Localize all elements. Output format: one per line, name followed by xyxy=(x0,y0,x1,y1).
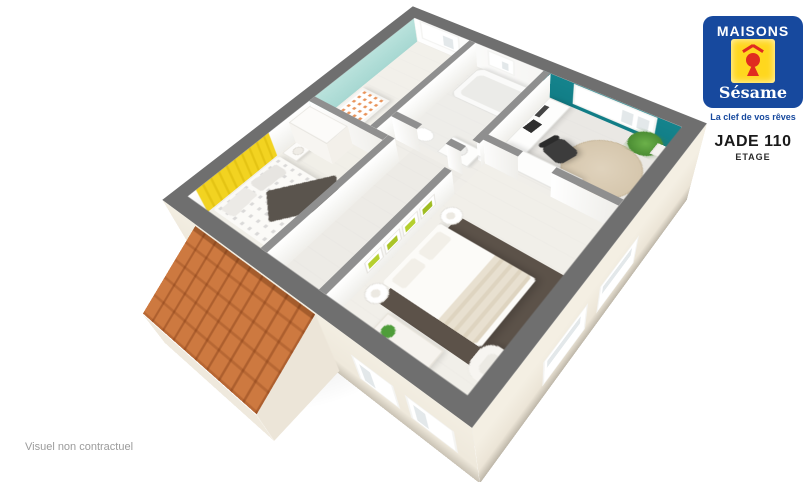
logo-sesame-text: Sésame xyxy=(719,83,787,102)
accent-wall-aqua xyxy=(309,18,417,123)
wardrobe-top xyxy=(289,106,348,144)
keyhole-stem-icon xyxy=(747,63,759,76)
bathtub xyxy=(449,67,539,122)
bathroom-window xyxy=(487,50,515,77)
logo-tagline: La clef de vos rêves xyxy=(694,112,811,122)
baby-crib xyxy=(328,87,390,130)
keyhole-roof-icon xyxy=(752,44,764,53)
disclaimer-text: Visuel non contractuel xyxy=(25,441,133,453)
floorplan-3d-model xyxy=(175,29,700,446)
wall-top xyxy=(370,40,475,128)
logo-maisons-text: MAISONS xyxy=(717,23,789,39)
plan-level-subtitle: ETAGE xyxy=(703,152,803,162)
floorplan-scene xyxy=(228,0,648,395)
logo-yellow-square xyxy=(731,39,775,83)
desk-monitor xyxy=(534,105,549,118)
crib-canopy xyxy=(320,111,364,133)
wall-top xyxy=(391,111,422,129)
nursery-window xyxy=(419,21,460,55)
plan-model-title: JADE 110 xyxy=(703,133,803,151)
bathtub-basin xyxy=(458,74,526,115)
maisons-sesame-logo: MAISONS Sésame xyxy=(703,16,803,108)
wall-top xyxy=(309,96,388,140)
